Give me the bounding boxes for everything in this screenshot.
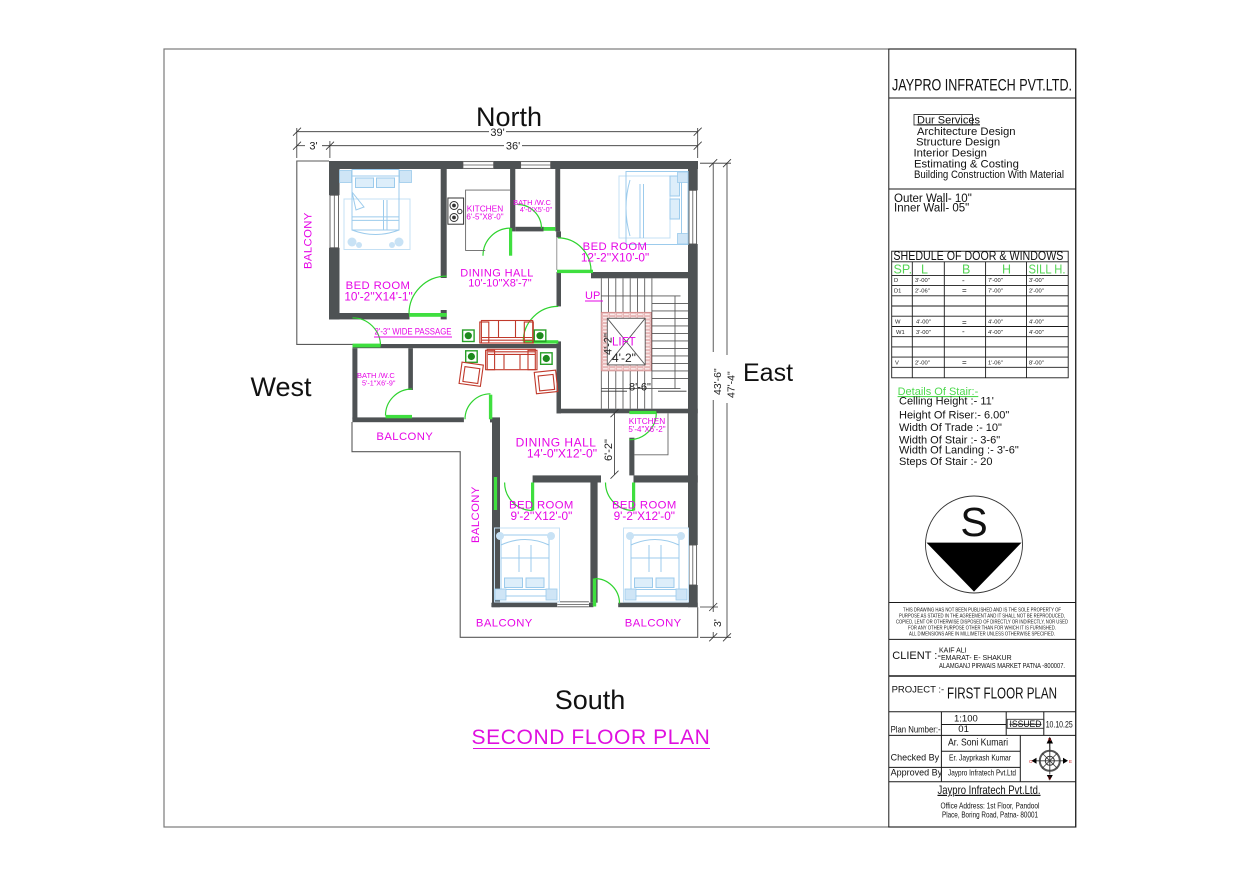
svg-text:2'-3" WIDE PASSAGE: 2'-3" WIDE PASSAGE: [375, 327, 452, 337]
svg-text:BALCONY: BALCONY: [470, 486, 482, 543]
svg-text:BALCONY: BALCONY: [303, 212, 315, 269]
svg-text:ISSUED: ISSUED: [1010, 719, 1042, 729]
svg-text:CLIENT :-: CLIENT :-: [892, 650, 941, 662]
svg-text:=: =: [962, 358, 967, 367]
svg-text:SECOND FLOOR PLAN: SECOND FLOOR PLAN: [472, 726, 711, 749]
svg-text:Er. Jayprkash Kumar: Er. Jayprkash Kumar: [949, 752, 1011, 762]
svg-text:W1: W1: [896, 330, 905, 336]
svg-text:2'-06": 2'-06": [915, 288, 930, 294]
svg-text:Jaypro Infratech Pvt.Ltd: Jaypro Infratech Pvt.Ltd: [948, 768, 1016, 778]
svg-text:3'-00": 3'-00": [916, 330, 931, 336]
svg-text:2'-00": 2'-00": [1029, 288, 1044, 294]
svg-text:5'-1"X6'-9": 5'-1"X6'-9": [362, 379, 396, 388]
svg-text:10'-10"X8'-7": 10'-10"X8'-7": [468, 278, 531, 290]
svg-text:12'-2''X10'-0": 12'-2''X10'-0": [581, 251, 649, 265]
svg-text:8'-6": 8'-6": [629, 382, 651, 394]
svg-text:W: W: [895, 320, 901, 326]
svg-text:6'-2": 6'-2": [603, 439, 615, 461]
svg-text:Dur Services: Dur Services: [917, 114, 980, 126]
svg-text:Place, Boring Road, Patna- 800: Place, Boring Road, Patna- 80001: [942, 810, 1038, 820]
svg-text:4'-0'X5'-0": 4'-0'X5'-0": [520, 205, 553, 214]
svg-text:Steps Of Stair :- 20: Steps Of Stair :- 20: [899, 456, 993, 468]
svg-text:H: H: [1002, 263, 1011, 277]
svg-text:Celling Height :- 11': Celling Height :- 11': [899, 396, 994, 408]
svg-text:S: S: [960, 499, 987, 545]
svg-text:BALCONY: BALCONY: [376, 431, 433, 443]
svg-text:SP.: SP.: [894, 263, 913, 277]
svg-text:2'-00": 2'-00": [915, 361, 930, 367]
svg-text:3': 3': [309, 141, 317, 153]
svg-text:4'-00": 4'-00": [916, 320, 931, 326]
svg-text:=: =: [962, 318, 967, 327]
svg-text:7'-00": 7'-00": [988, 278, 1003, 284]
svg-text:BALCONY: BALCONY: [476, 618, 533, 630]
svg-text:4'-00": 4'-00": [1029, 320, 1044, 326]
svg-text:36': 36': [506, 141, 520, 153]
svg-text:South: South: [555, 685, 626, 715]
svg-text:7'-00": 7'-00": [988, 288, 1003, 294]
svg-text:4'-2": 4'-2": [612, 351, 636, 365]
svg-text:1'-06": 1'-06": [988, 361, 1003, 367]
svg-text:6'-5"X8'-0": 6'-5"X8'-0": [466, 213, 503, 222]
svg-text:KAIF ALI: KAIF ALI: [939, 648, 967, 655]
svg-text:4'-00": 4'-00": [1029, 330, 1044, 336]
svg-text:Inner Wall- 05": Inner Wall- 05": [894, 203, 969, 215]
svg-text:Height Of Riser:- 6.00": Height Of Riser:- 6.00": [899, 409, 1009, 421]
svg-text:North: North: [476, 102, 542, 132]
svg-text:3': 3': [712, 619, 724, 627]
svg-text:Building Construction With Mat: Building Construction With Material: [914, 169, 1064, 181]
svg-text:UP: UP: [585, 290, 600, 302]
svg-text:3'-00": 3'-00": [915, 278, 930, 284]
svg-text:14'-0"X12'-0": 14'-0"X12'-0": [527, 447, 597, 461]
svg-text:West: West: [250, 372, 312, 402]
svg-text:Checked By: Checked By: [891, 752, 940, 762]
svg-text:-: -: [962, 276, 965, 285]
svg-text:Approved By: Approved By: [891, 768, 943, 778]
svg-text:B: B: [962, 263, 970, 277]
svg-text:3'-00": 3'-00": [1029, 278, 1044, 284]
svg-text:9'-2"X12'-0": 9'-2"X12'-0": [614, 509, 675, 523]
svg-text:Plan Number:-: Plan Number:-: [891, 725, 941, 735]
svg-text:Width Of Trade :- 10": Width Of Trade :- 10": [899, 422, 1002, 434]
svg-text:9'-2''X12'-0": 9'-2''X12'-0": [511, 509, 573, 523]
svg-text:39': 39': [490, 127, 504, 139]
svg-text:V: V: [895, 361, 899, 367]
svg-text:SHEDULE OF DOOR & WINDOWS: SHEDULE OF DOOR & WINDOWS: [893, 248, 1063, 263]
svg-text:LIFT: LIFT: [612, 337, 636, 349]
svg-text:01: 01: [958, 724, 969, 735]
svg-text:EMARAT- E- SHAKUR: EMARAT- E- SHAKUR: [941, 655, 1012, 662]
svg-text:-: -: [962, 327, 965, 336]
svg-text:D1: D1: [894, 288, 901, 294]
svg-text:SILL H.: SILL H.: [1029, 263, 1066, 277]
svg-text:East: East: [743, 359, 793, 387]
svg-text:8'-00": 8'-00": [1029, 361, 1044, 367]
svg-text:10.10.25: 10.10.25: [1046, 720, 1073, 730]
svg-text:FIRST FLOOR PLAN: FIRST FLOOR PLAN: [947, 686, 1057, 703]
svg-text:Jaypro Infratech Pvt.Ltd.: Jaypro Infratech Pvt.Ltd.: [938, 783, 1041, 797]
svg-text:E: E: [1069, 759, 1072, 764]
svg-text:JAYPRO INFRATECH PVT.LTD.: JAYPRO INFRATECH PVT.LTD.: [892, 76, 1072, 95]
svg-text:1:100: 1:100: [954, 714, 978, 725]
svg-text:Width Of Landing :- 3'-6": Width Of Landing :- 3'-6": [899, 444, 1019, 456]
svg-text:BALCONY: BALCONY: [625, 618, 682, 630]
svg-text:=: =: [962, 286, 967, 295]
svg-text:4'-00": 4'-00": [988, 320, 1003, 326]
svg-text:L: L: [921, 263, 928, 277]
svg-text:Ar. Soni Kumari: Ar. Soni Kumari: [948, 737, 1008, 749]
svg-text:D: D: [894, 278, 898, 284]
svg-text:O: O: [1029, 759, 1033, 764]
svg-text:S: S: [1048, 776, 1051, 781]
svg-text:10'-2''X14'-1": 10'-2''X14'-1": [344, 290, 412, 304]
svg-text:ALL DIMENSIONS ARE IN MILLIMET: ALL DIMENSIONS ARE IN MILLIMETER UNLESS …: [909, 632, 1055, 638]
svg-text:N: N: [1048, 737, 1051, 742]
svg-text:5'-4"X6'-2": 5'-4"X6'-2": [628, 425, 665, 434]
svg-text:4'-00": 4'-00": [988, 330, 1003, 336]
svg-text:ALAMGANJ PIRWAIS MARKET PATNA: ALAMGANJ PIRWAIS MARKET PATNA -800007.: [939, 663, 1065, 670]
svg-text:PROJECT :-: PROJECT :-: [892, 685, 945, 696]
svg-text:47'-4": 47'-4": [726, 371, 738, 398]
